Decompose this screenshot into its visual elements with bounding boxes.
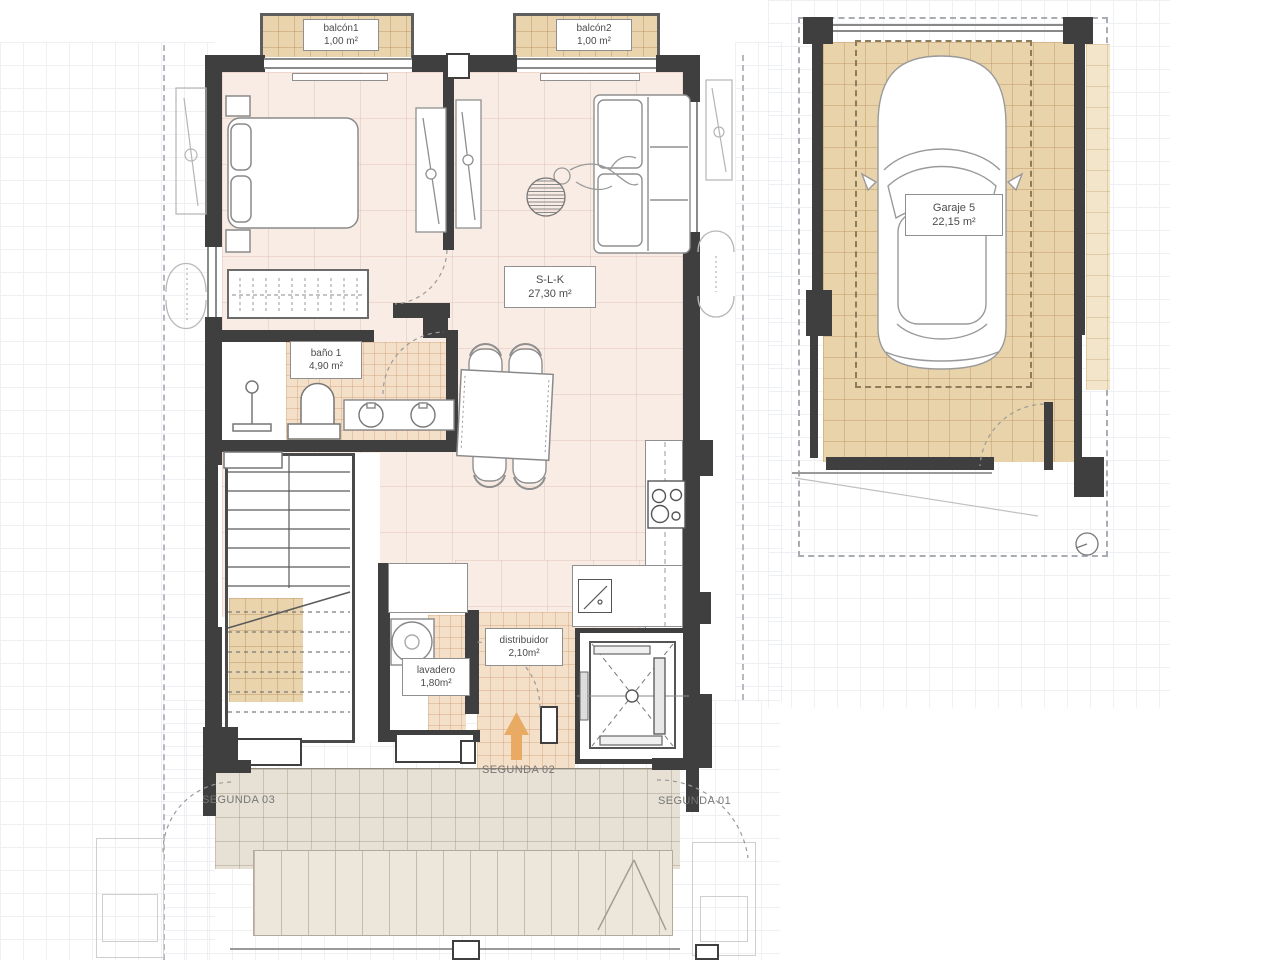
- wall: [205, 55, 222, 247]
- room-label-garaje: Garaje 5 22,15 m²: [905, 194, 1003, 236]
- annotation-segunda01: SEGUNDA 01: [658, 795, 731, 807]
- room-area: 1,00 m²: [577, 35, 611, 48]
- sliding-door-balcony2: [540, 73, 640, 81]
- room-area: 22,15 m²: [932, 215, 975, 229]
- room-area: 2,10m²: [508, 647, 539, 660]
- wall: [393, 303, 450, 318]
- entry-door-post: [540, 706, 558, 744]
- wall: [686, 694, 712, 768]
- garage-wall-left: [810, 336, 818, 458]
- room-label-lavadero: lavadero 1,80m²: [402, 658, 470, 696]
- corner-bracket-left: [203, 760, 216, 816]
- wall: [205, 627, 222, 727]
- window-balcony2: [517, 58, 656, 69]
- garage-wall-step: [1074, 457, 1104, 497]
- wall: [205, 317, 222, 465]
- adjacent-window-leaf-right: [706, 80, 732, 180]
- garage-top-line: [833, 24, 1063, 26]
- laundry-counter: [388, 563, 468, 613]
- wall-junction: [446, 53, 470, 79]
- garage-wall-right: [1074, 335, 1082, 457]
- wall-pilaster: [683, 440, 713, 476]
- garage-lower-line: [792, 472, 992, 474]
- room-name: lavadero: [417, 664, 455, 677]
- annotation-segunda02: SEGUNDA 02: [482, 764, 555, 776]
- room-area: 1,80m²: [420, 677, 451, 690]
- property-line-right: [742, 55, 744, 700]
- wall: [683, 476, 700, 592]
- room-label-balcon2: balcón2 1,00 m²: [556, 19, 632, 51]
- wall-bath-bottom: [222, 440, 458, 452]
- garage-pillar: [803, 17, 833, 44]
- room-label-slk: S-L-K 27,30 m²: [504, 266, 596, 308]
- garage-door-leaf: [1044, 402, 1053, 470]
- garage-pillar: [806, 290, 832, 336]
- room-label-balcon1: balcón1 1,00 m²: [303, 19, 379, 51]
- wall-partition: [443, 72, 454, 250]
- roof-below: [253, 850, 673, 936]
- adjacent-structure: [700, 896, 748, 942]
- wall-segment: [452, 940, 480, 960]
- property-line-left: [163, 45, 165, 960]
- wall: [683, 55, 700, 102]
- elevator-shaft: [575, 628, 688, 764]
- adjacent-seats-right: [698, 231, 734, 317]
- room-name: balcón2: [576, 22, 611, 35]
- annotation-segunda03: SEGUNDA 03: [202, 794, 275, 806]
- kitchen-sink: [578, 579, 612, 613]
- garage-wall-bottom: [826, 457, 994, 470]
- stair-landing-area: [353, 453, 380, 742]
- wall: [205, 465, 218, 627]
- understair-tile: [229, 598, 303, 702]
- window-right: [688, 102, 698, 232]
- room-label-distribuidor: distribuidor 2,10m²: [485, 628, 563, 666]
- wall: [683, 342, 700, 442]
- garage-top-line: [833, 30, 1063, 32]
- room-name: balcón1: [323, 22, 358, 35]
- adjacent-structure: [102, 894, 158, 942]
- garage-pillar: [1063, 17, 1093, 44]
- sliding-door-balcony1: [292, 73, 388, 81]
- room-name: S-L-K: [536, 273, 564, 287]
- wall-pilaster: [683, 592, 711, 624]
- garage-side-strip: [1086, 44, 1110, 390]
- window-left: [207, 247, 217, 317]
- shower-area: [222, 342, 286, 442]
- room-name: distribuidor: [500, 634, 549, 647]
- room-area: 1,00 m²: [324, 35, 358, 48]
- garage-wall-right: [1074, 44, 1085, 335]
- wall-segment: [460, 740, 476, 764]
- room-label-bano1: baño 1 4,90 m²: [290, 341, 362, 379]
- wall: [683, 232, 700, 342]
- room-name: Garaje 5: [933, 201, 975, 215]
- wall-segment: [695, 944, 719, 960]
- room-area: 27,30 m²: [528, 287, 571, 301]
- room-name: baño 1: [311, 347, 342, 360]
- window-balcony1: [264, 58, 412, 69]
- wall: [423, 318, 448, 338]
- room-area: 4,90 m²: [309, 360, 343, 373]
- wall-bath-right: [446, 330, 458, 444]
- garage-wall-left: [812, 44, 823, 290]
- floor-plan-canvas: balcón1 1,00 m² balcón2 1,00 m² S-L-K 27…: [0, 0, 1280, 960]
